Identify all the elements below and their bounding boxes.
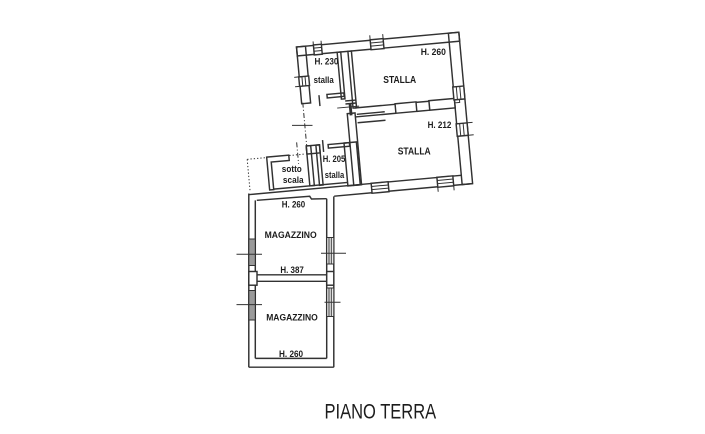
svg-text:H. 387: H. 387 xyxy=(280,265,303,276)
svg-text:H. 212: H. 212 xyxy=(428,120,452,131)
svg-text:stalla: stalla xyxy=(314,75,335,86)
svg-text:MAGAZZINO: MAGAZZINO xyxy=(265,230,317,241)
svg-text:scala: scala xyxy=(283,175,304,186)
svg-text:H. 260: H. 260 xyxy=(421,47,446,58)
svg-text:sotto: sotto xyxy=(282,164,302,175)
svg-text:MAGAZZINO: MAGAZZINO xyxy=(266,313,318,324)
svg-text:H. 205: H. 205 xyxy=(323,154,346,165)
svg-text:H. 260: H. 260 xyxy=(279,349,303,360)
svg-text:PIANO TERRA: PIANO TERRA xyxy=(325,400,437,423)
svg-text:H. 260: H. 260 xyxy=(282,200,305,211)
svg-text:H. 230: H. 230 xyxy=(315,57,339,68)
svg-text:STALLA: STALLA xyxy=(383,75,416,86)
svg-text:stalla: stalla xyxy=(325,170,345,181)
svg-text:STALLA: STALLA xyxy=(398,147,431,158)
